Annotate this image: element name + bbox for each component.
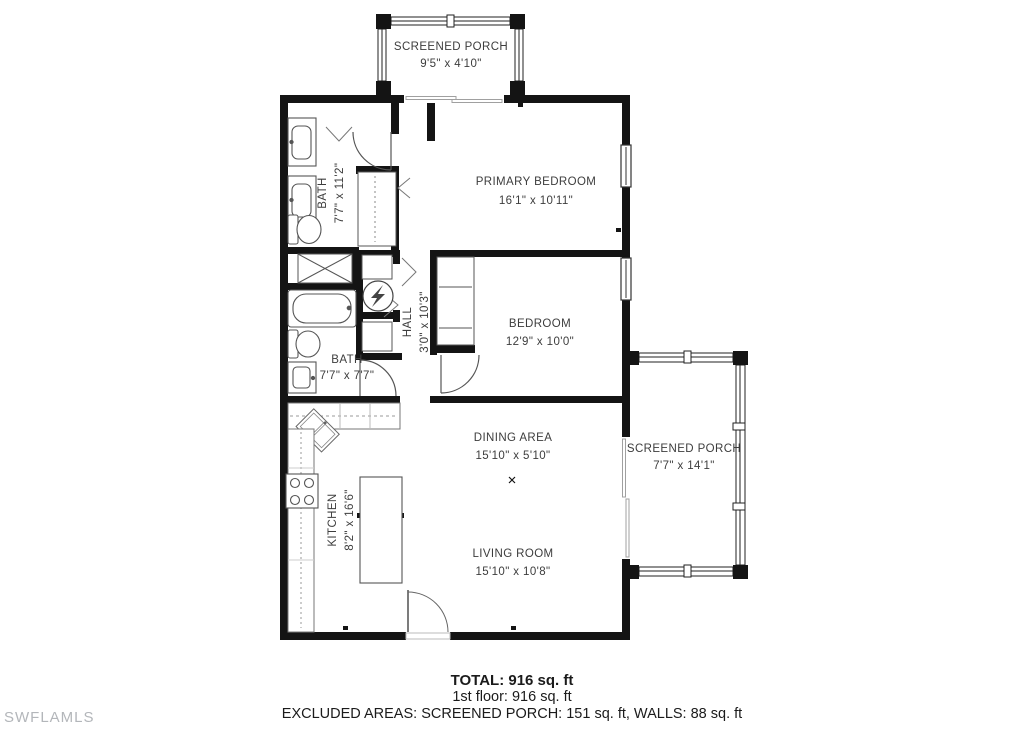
room-dims-screened-porch-top: 9'5" x 4'10"	[420, 58, 481, 70]
corridor-closet	[358, 172, 396, 246]
room-label-bath-upper: BATH	[317, 177, 329, 208]
mls-watermark: SWFLAMLS	[4, 709, 95, 726]
bathtub-icon	[288, 290, 356, 327]
room-dims-hall: 3'0" x 10'3"	[419, 291, 431, 352]
window-bedroom	[621, 258, 631, 300]
closet-shelves	[437, 257, 474, 345]
room-dims-screened-porch-right: 7'7" x 14'1"	[653, 460, 714, 472]
utility-shelf-closet	[362, 255, 392, 279]
utility-closet	[362, 322, 392, 351]
floor-plan-page: SCREENED PORCH 9'5" x 4'10" PRIMARY BEDR…	[0, 0, 1024, 735]
window-primary-bedroom	[621, 145, 631, 187]
small-vanity-sink-icon	[288, 362, 316, 393]
bath-upper-door-arc	[353, 132, 391, 170]
room-label-primary-bedroom: PRIMARY BEDROOM	[476, 176, 597, 188]
sliding-door-right	[622, 437, 630, 559]
room-dims-primary-bedroom: 16'1" x 10'11"	[499, 195, 573, 207]
room-label-screened-porch-top: SCREENED PORCH	[394, 41, 508, 53]
room-label-bedroom: BEDROOM	[509, 318, 571, 330]
room-label-dining-area: DINING AREA	[474, 432, 553, 444]
room-dims-bath-upper: 7'7" x 11'2"	[334, 163, 346, 224]
room-dims-living-room: 15'10" x 10'8"	[475, 566, 550, 578]
room-label-hall: HALL	[402, 307, 414, 338]
first-floor-area-text: 1st floor: 916 sq. ft	[0, 689, 1024, 706]
room-dims-kitchen: 8'2" x 16'6"	[344, 489, 356, 550]
room-dims-bedroom: 12'9" x 10'0"	[506, 336, 574, 348]
water-heater-icon	[363, 281, 393, 311]
room-label-screened-porch-right: SCREENED PORCH	[627, 443, 741, 455]
excluded-areas-text: EXCLUDED AREAS: SCREENED PORCH: 151 sq. …	[0, 706, 1024, 723]
kitchen-counter-left	[288, 429, 314, 632]
room-dims-bath-lower: 7'7" x 7'7"	[320, 370, 375, 382]
floor-plan-drawing: SCREENED PORCH 9'5" x 4'10" PRIMARY BEDR…	[0, 0, 1024, 735]
entry-door	[406, 590, 450, 640]
toilet-icon	[288, 330, 320, 358]
room-label-living-room: LIVING ROOM	[472, 548, 553, 560]
stove-icon	[286, 474, 318, 508]
room-label-kitchen: KITCHEN	[327, 493, 339, 546]
kitchen-island	[360, 477, 402, 583]
room-label-bath-lower: BATH	[331, 354, 362, 366]
vanity-sink-icon	[288, 118, 316, 166]
toilet-icon	[288, 215, 321, 244]
bedroom-door-arc	[441, 355, 479, 393]
area-summary: TOTAL: 916 sq. ft 1st floor: 916 sq. ft …	[0, 672, 1024, 722]
shower-closet-icon	[298, 254, 352, 283]
room-dims-dining-area: 15'10" x 5'10"	[475, 450, 550, 462]
sliding-door-top	[404, 95, 504, 103]
total-area-text: TOTAL: 916 sq. ft	[0, 672, 1024, 689]
